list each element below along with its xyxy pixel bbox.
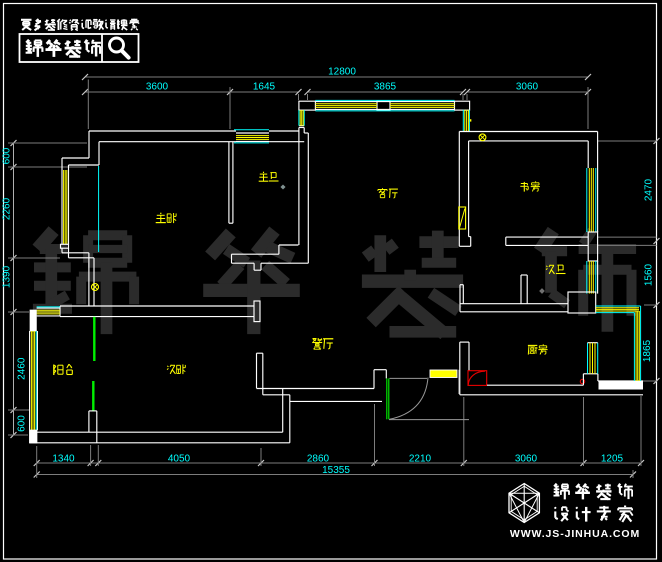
svg-text:3865: 3865: [374, 82, 397, 93]
svg-text:2860: 2860: [307, 454, 330, 465]
svg-text:15355: 15355: [322, 465, 350, 476]
svg-text:12800: 12800: [328, 67, 356, 78]
svg-text:1390: 1390: [2, 265, 13, 288]
svg-text:1340: 1340: [52, 454, 75, 465]
svg-text:2470: 2470: [644, 178, 655, 201]
svg-text:600: 600: [2, 147, 13, 164]
svg-text:1560: 1560: [644, 263, 655, 286]
svg-text:2210: 2210: [409, 454, 432, 465]
svg-text:600: 600: [17, 415, 28, 432]
svg-text:3060: 3060: [515, 454, 538, 465]
svg-text:3060: 3060: [516, 82, 539, 93]
svg-text:4050: 4050: [168, 454, 191, 465]
svg-text:1645: 1645: [253, 82, 276, 93]
svg-text:2460: 2460: [17, 357, 28, 380]
svg-text:WWW.JS-JINHUA.COM: WWW.JS-JINHUA.COM: [510, 528, 640, 540]
svg-text:1205: 1205: [601, 454, 624, 465]
svg-text:3600: 3600: [146, 82, 169, 93]
svg-text:1865: 1865: [642, 339, 653, 362]
svg-text:2260: 2260: [2, 197, 13, 220]
